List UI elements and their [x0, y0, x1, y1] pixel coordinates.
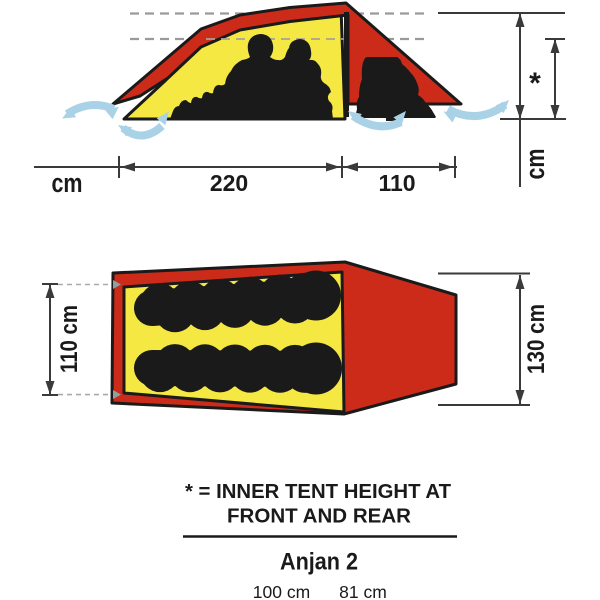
svg-text:cm: cm	[520, 149, 550, 180]
svg-text:100 cm: 100 cm	[253, 582, 310, 600]
svg-text:130 cm: 130 cm	[523, 304, 550, 374]
svg-text:81 cm: 81 cm	[339, 582, 387, 600]
svg-text:*: *	[529, 67, 541, 100]
svg-text:110 cm: 110 cm	[56, 305, 83, 373]
svg-text:* = INNER TENT HEIGHT AT: * = INNER TENT HEIGHT AT	[185, 481, 451, 503]
svg-text:110: 110	[378, 170, 415, 196]
svg-text:220: 220	[210, 170, 248, 196]
svg-text:cm: cm	[52, 168, 83, 198]
svg-text:Anjan 2: Anjan 2	[280, 549, 358, 576]
svg-text:FRONT AND REAR: FRONT AND REAR	[227, 506, 412, 528]
